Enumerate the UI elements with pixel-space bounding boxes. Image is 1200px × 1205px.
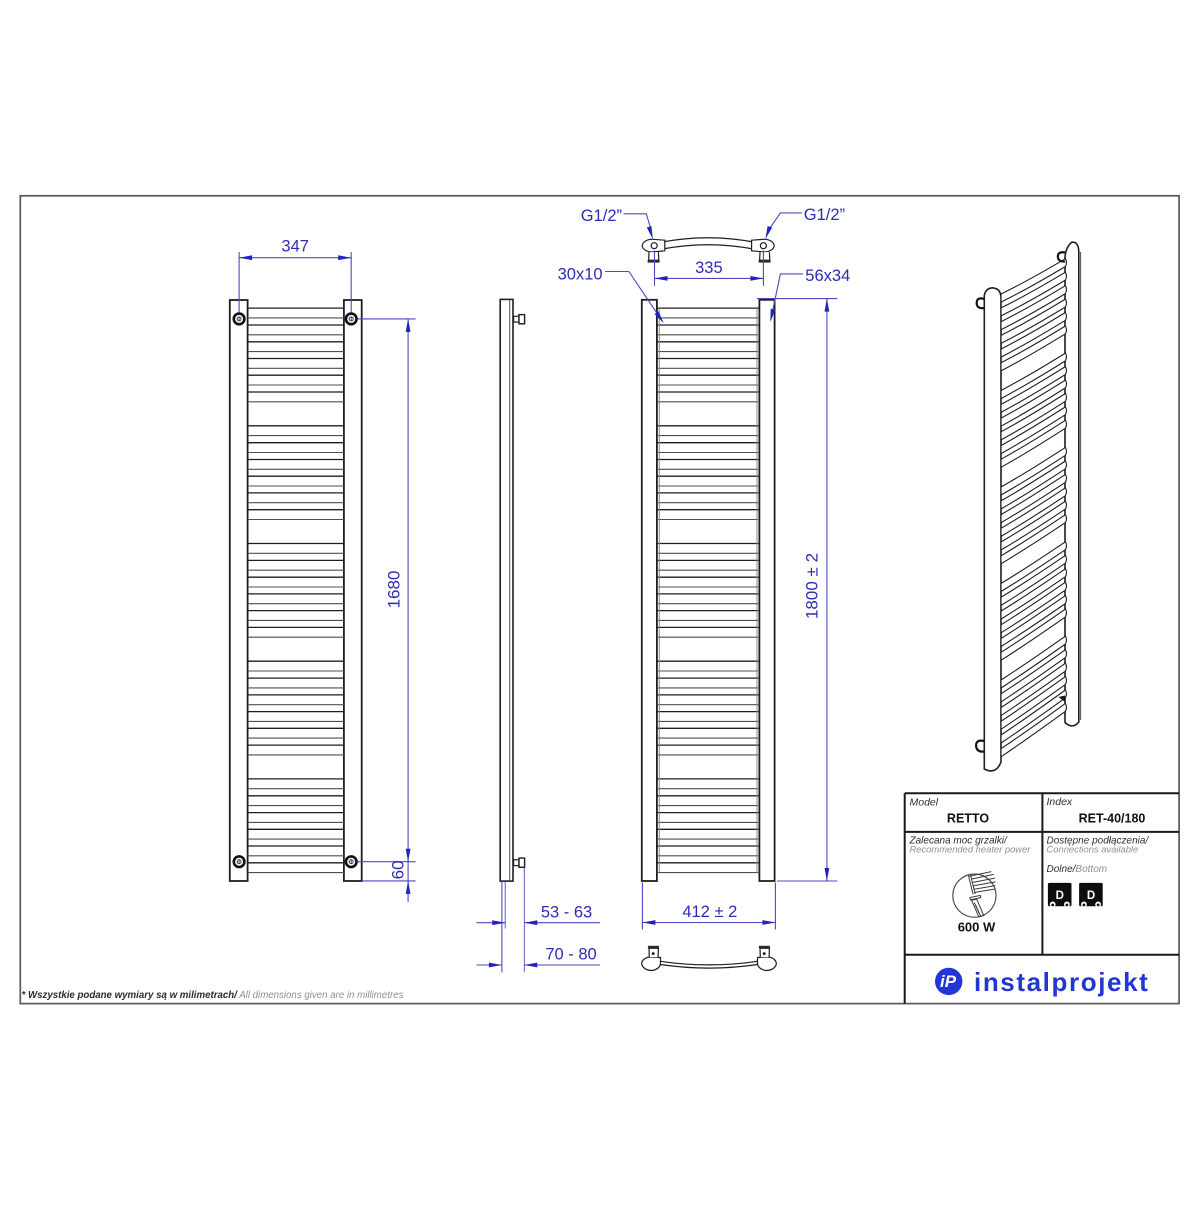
- svg-text:Model: Model: [910, 797, 939, 809]
- svg-text:347: 347: [281, 238, 309, 256]
- svg-text:1800 ± 2: 1800 ± 2: [803, 553, 822, 619]
- svg-text:53 - 63: 53 - 63: [541, 904, 592, 922]
- svg-text:56x34: 56x34: [805, 267, 850, 285]
- svg-text:60: 60: [388, 860, 407, 879]
- svg-text:1680: 1680: [385, 571, 404, 609]
- svg-text:Index: Index: [1047, 796, 1073, 808]
- svg-text:Dolne/Bottom: Dolne/Bottom: [1047, 864, 1108, 875]
- svg-text:iP: iP: [940, 972, 957, 991]
- svg-text:30x10: 30x10: [558, 265, 603, 283]
- svg-text:* Wszystkie podane wymiary są: * Wszystkie podane wymiary są w milimetr…: [22, 990, 404, 1001]
- svg-text:G1/2”: G1/2”: [804, 206, 845, 224]
- svg-text:instalprojekt: instalprojekt: [974, 967, 1149, 997]
- svg-text:G1/2”: G1/2”: [581, 207, 622, 225]
- svg-text:RETTO: RETTO: [947, 812, 989, 826]
- svg-text:335: 335: [695, 259, 723, 277]
- svg-text:D: D: [1087, 890, 1095, 902]
- svg-text:Recommended heater power: Recommended heater power: [910, 844, 1032, 855]
- svg-text:70 - 80: 70 - 80: [545, 946, 596, 964]
- svg-text:412 ± 2: 412 ± 2: [682, 903, 737, 921]
- svg-text:Connections available: Connections available: [1047, 844, 1139, 855]
- svg-text:D: D: [1056, 890, 1064, 902]
- svg-text:600 W: 600 W: [958, 920, 996, 935]
- svg-text:RET-40/180: RET-40/180: [1079, 812, 1146, 826]
